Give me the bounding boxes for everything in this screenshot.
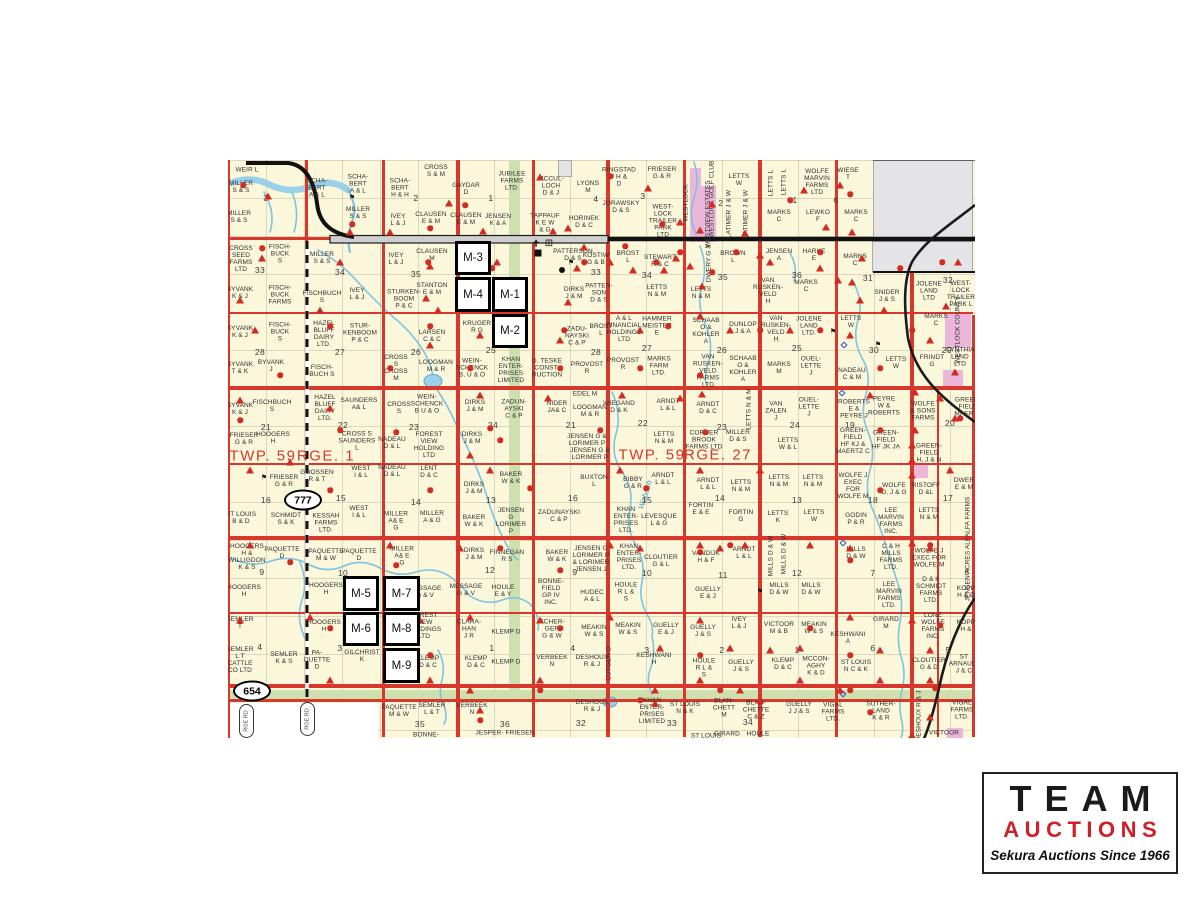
logo-tagline-text: Sekura Auctions Since 1966 [984, 848, 1176, 863]
sale-marker-M-8: M-8 [383, 612, 420, 646]
range-road-badge: RGE RD [239, 704, 254, 738]
overlay-layer: 777654RGE RDRGE RDM-3M-4M-1M-2M-5M-7M-6M… [228, 160, 975, 738]
sale-marker-M-9: M-9 [383, 648, 420, 683]
sale-marker-M-5: M-5 [343, 576, 379, 611]
highway-shield-654: 654 [233, 681, 271, 702]
sale-marker-M-3: M-3 [455, 241, 491, 275]
range-road-badge-label: RGE RD [244, 710, 250, 731]
sale-marker-M-1: M-1 [492, 277, 528, 312]
sale-marker-M-4: M-4 [455, 277, 491, 312]
team-auctions-logo: TEAM AUCTIONS Sekura Auctions Since 1966 [982, 772, 1178, 874]
page: { "logo": { "line1": "TEAM", "line2": "A… [0, 0, 1200, 900]
range-road-badge-label: RGE RD [305, 708, 311, 729]
sale-marker-M-7: M-7 [383, 576, 420, 611]
sale-marker-M-2: M-2 [492, 314, 528, 348]
sale-marker-M-6: M-6 [343, 612, 379, 646]
logo-auctions-text: AUCTIONS [984, 817, 1176, 842]
logo-team-text: TEAM [984, 781, 1176, 817]
highway-shield-777: 777 [284, 490, 322, 511]
map-canvas: WEIR LMILLER S & SMILLER S & SSCHA- BERT… [228, 160, 975, 738]
range-road-badge: RGE RD [300, 702, 315, 736]
